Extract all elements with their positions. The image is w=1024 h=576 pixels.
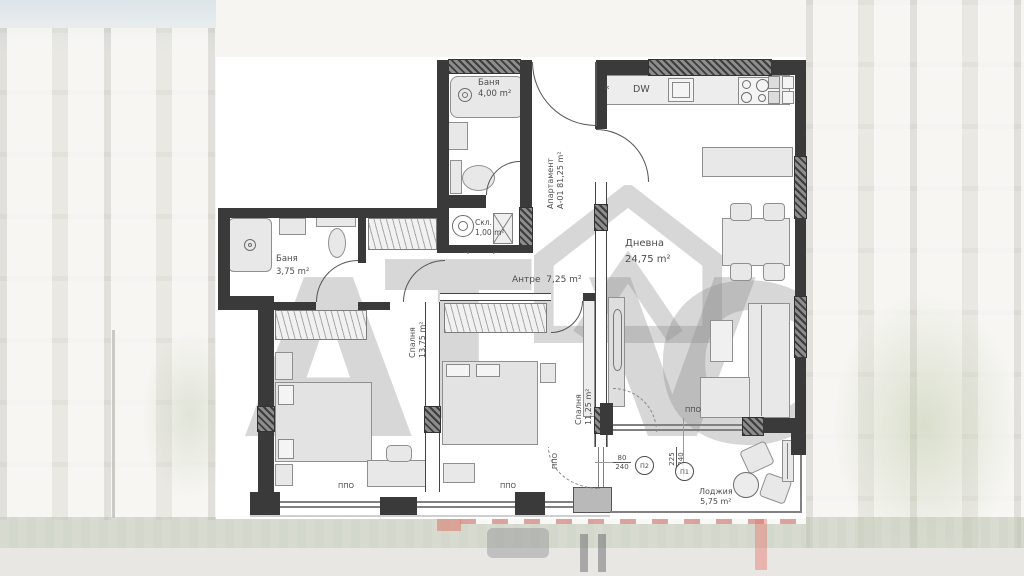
- wall: [791, 430, 806, 455]
- wall-hatched: [795, 297, 806, 357]
- stove-burner: [758, 94, 766, 102]
- dresser: [443, 463, 475, 483]
- stove-burner: [756, 79, 769, 92]
- wall-pier: [573, 487, 612, 513]
- kitchen-door-arc: [596, 129, 649, 182]
- ppo-marker: ППО: [338, 482, 354, 491]
- door-marker-p2: П2: [635, 456, 654, 475]
- room-label-storage: Скл. 1,00 m²: [475, 218, 504, 238]
- wall: [218, 208, 437, 218]
- bathroom1-door-arc: [486, 161, 520, 195]
- room-name: Антре: [512, 275, 541, 285]
- hall-arrow-left: ←: [492, 248, 499, 258]
- room-area: 24,75 m²: [625, 253, 671, 266]
- wall: [520, 60, 532, 73]
- wall: [218, 302, 316, 310]
- window-line: [603, 447, 604, 487]
- wall: [437, 60, 449, 208]
- loggia-wall: [610, 511, 802, 513]
- wall: [358, 215, 366, 263]
- pantry-unit: [768, 91, 780, 104]
- bollard-2: [598, 534, 606, 572]
- room-area: 1,00 m²: [475, 228, 504, 238]
- desk-chair: [386, 445, 412, 462]
- room-label-hall: Антре 7,25 m²: [512, 275, 582, 287]
- lamp-post: [112, 330, 115, 518]
- room-label-bath2: Баня 3,75 m²: [276, 254, 309, 278]
- room-name: Баня: [478, 78, 511, 89]
- stove-burner: [742, 80, 751, 89]
- wall: [437, 195, 486, 208]
- stove-burner: [741, 92, 752, 103]
- entrance-door-arc: [532, 62, 596, 126]
- wall-hatched: [425, 407, 440, 432]
- partition-wall: [440, 293, 551, 301]
- dimension-numerator: 80: [613, 454, 631, 463]
- kitchen-sink-basin: [672, 82, 690, 98]
- window-line: [280, 501, 380, 503]
- pantry-unit: [782, 76, 794, 89]
- wall: [380, 497, 417, 515]
- wall: [358, 302, 390, 310]
- wall: [218, 208, 230, 304]
- pantry-unit: [782, 91, 794, 104]
- dining-chair: [763, 203, 785, 221]
- wall: [437, 208, 449, 253]
- dining-table: [722, 218, 790, 266]
- tv-screen: [613, 309, 622, 371]
- window-line: [280, 506, 380, 508]
- pillow: [446, 364, 470, 377]
- wall-hatched: [743, 418, 763, 435]
- radiator-line: [787, 443, 788, 479]
- window-line: [417, 501, 515, 503]
- apartment-line1: Апартамент: [546, 151, 556, 209]
- room-area: 11,25 m²: [584, 389, 594, 425]
- wall-hatched: [649, 60, 771, 75]
- room-area: 4,00 m²: [478, 89, 511, 100]
- door-marker-label: П1: [680, 468, 689, 476]
- shower-drain-dot: [248, 243, 252, 247]
- pillow: [278, 439, 294, 459]
- room-label-loggia: Лоджия 5,75 m²: [699, 487, 733, 508]
- wall: [763, 418, 799, 433]
- nightstand: [275, 352, 293, 380]
- pantry-unit: [768, 76, 780, 89]
- room-area: 7,25 m²: [546, 275, 581, 285]
- washing-machine-door: [458, 221, 468, 231]
- dimension-denominator: 240: [615, 463, 628, 471]
- pillow: [278, 385, 294, 405]
- apartment-label: Апартамент А-01 81,25 m²: [546, 151, 567, 209]
- loggia-table: [733, 472, 759, 498]
- leader-line: [595, 462, 613, 463]
- wall: [600, 403, 613, 435]
- wall: [515, 492, 545, 515]
- red-post: [755, 516, 767, 570]
- screenshot-root: А Т V С: [0, 0, 1024, 576]
- apartment-line2: А-01 81,25 m²: [556, 151, 566, 209]
- ppo-marker: ППО: [500, 482, 516, 491]
- wall-hatched: [595, 205, 607, 230]
- dining-chair: [730, 203, 752, 221]
- room-name: Спалня: [574, 389, 584, 425]
- room-name: Скл.: [475, 218, 504, 228]
- sofa-cushion-line: [761, 305, 762, 416]
- ppo-marker: ППО: [551, 453, 560, 469]
- room-name: Спалня: [408, 322, 418, 358]
- wardrobe: [444, 303, 547, 333]
- hall-wardrobe: [368, 218, 437, 250]
- wall: [520, 195, 532, 208]
- toilet-cistern: [316, 217, 356, 227]
- room-area: 3,75 m²: [276, 267, 309, 278]
- nightstand: [275, 464, 293, 486]
- kitchen-island: [702, 147, 793, 177]
- sofa-chaise: [700, 377, 750, 418]
- kitchen-star: *: [604, 83, 610, 97]
- wall: [258, 302, 274, 497]
- floor-plan-sheet: А Т V С: [216, 57, 806, 519]
- dimension-80-240: 80 240: [613, 454, 631, 471]
- door-marker-label: П2: [640, 462, 649, 470]
- wall: [795, 218, 806, 297]
- wall-hatched: [449, 60, 520, 73]
- hall-arrow-right: →: [463, 248, 470, 258]
- toilet-bowl: [328, 228, 346, 258]
- wall: [596, 60, 649, 75]
- wall: [449, 245, 532, 253]
- wall-hatched: [258, 407, 274, 431]
- wall: [520, 73, 532, 195]
- room-label-bath1: Баня 4,00 m²: [478, 78, 511, 100]
- car: [487, 528, 549, 558]
- entrance-door-leaf: [595, 62, 597, 126]
- loggia-wall: [800, 455, 802, 513]
- window-line: [545, 501, 573, 503]
- door-marker-p1: П1: [675, 462, 694, 481]
- room-area: 5,75 m²: [699, 497, 733, 507]
- nightstand: [540, 363, 556, 383]
- room-label-bedroom1: Спалня 13,75 m²: [408, 322, 429, 358]
- room-label-bedroom2: Спалня 11,25 m²: [574, 389, 595, 425]
- room-label-living: Дневна 24,75 m²: [625, 237, 671, 266]
- window-sill: [250, 515, 610, 517]
- toilet-cistern: [450, 160, 462, 194]
- window-line: [545, 506, 573, 508]
- wall-hatched: [795, 157, 806, 218]
- wall: [795, 75, 806, 157]
- dining-chair: [730, 263, 752, 281]
- window-line: [417, 506, 515, 508]
- sink: [279, 218, 306, 235]
- bathtub-faucet-dot: [462, 92, 468, 98]
- ppo-marker: ППО: [685, 406, 701, 415]
- room-name: Дневна: [625, 237, 671, 250]
- pillow: [476, 364, 500, 377]
- room-name: Баня: [276, 254, 309, 265]
- dishwasher-label: DW: [633, 84, 650, 96]
- coffee-table: [710, 320, 733, 362]
- wall: [250, 492, 280, 515]
- room-area: 13,75 m²: [418, 322, 428, 358]
- bollard-1: [580, 534, 588, 572]
- wall: [771, 60, 806, 75]
- dining-chair: [763, 263, 785, 281]
- desk: [367, 460, 430, 487]
- wardrobe: [275, 310, 367, 340]
- room-name: Лоджия: [699, 487, 733, 497]
- sofa-back: [748, 303, 790, 418]
- sink: [448, 122, 468, 150]
